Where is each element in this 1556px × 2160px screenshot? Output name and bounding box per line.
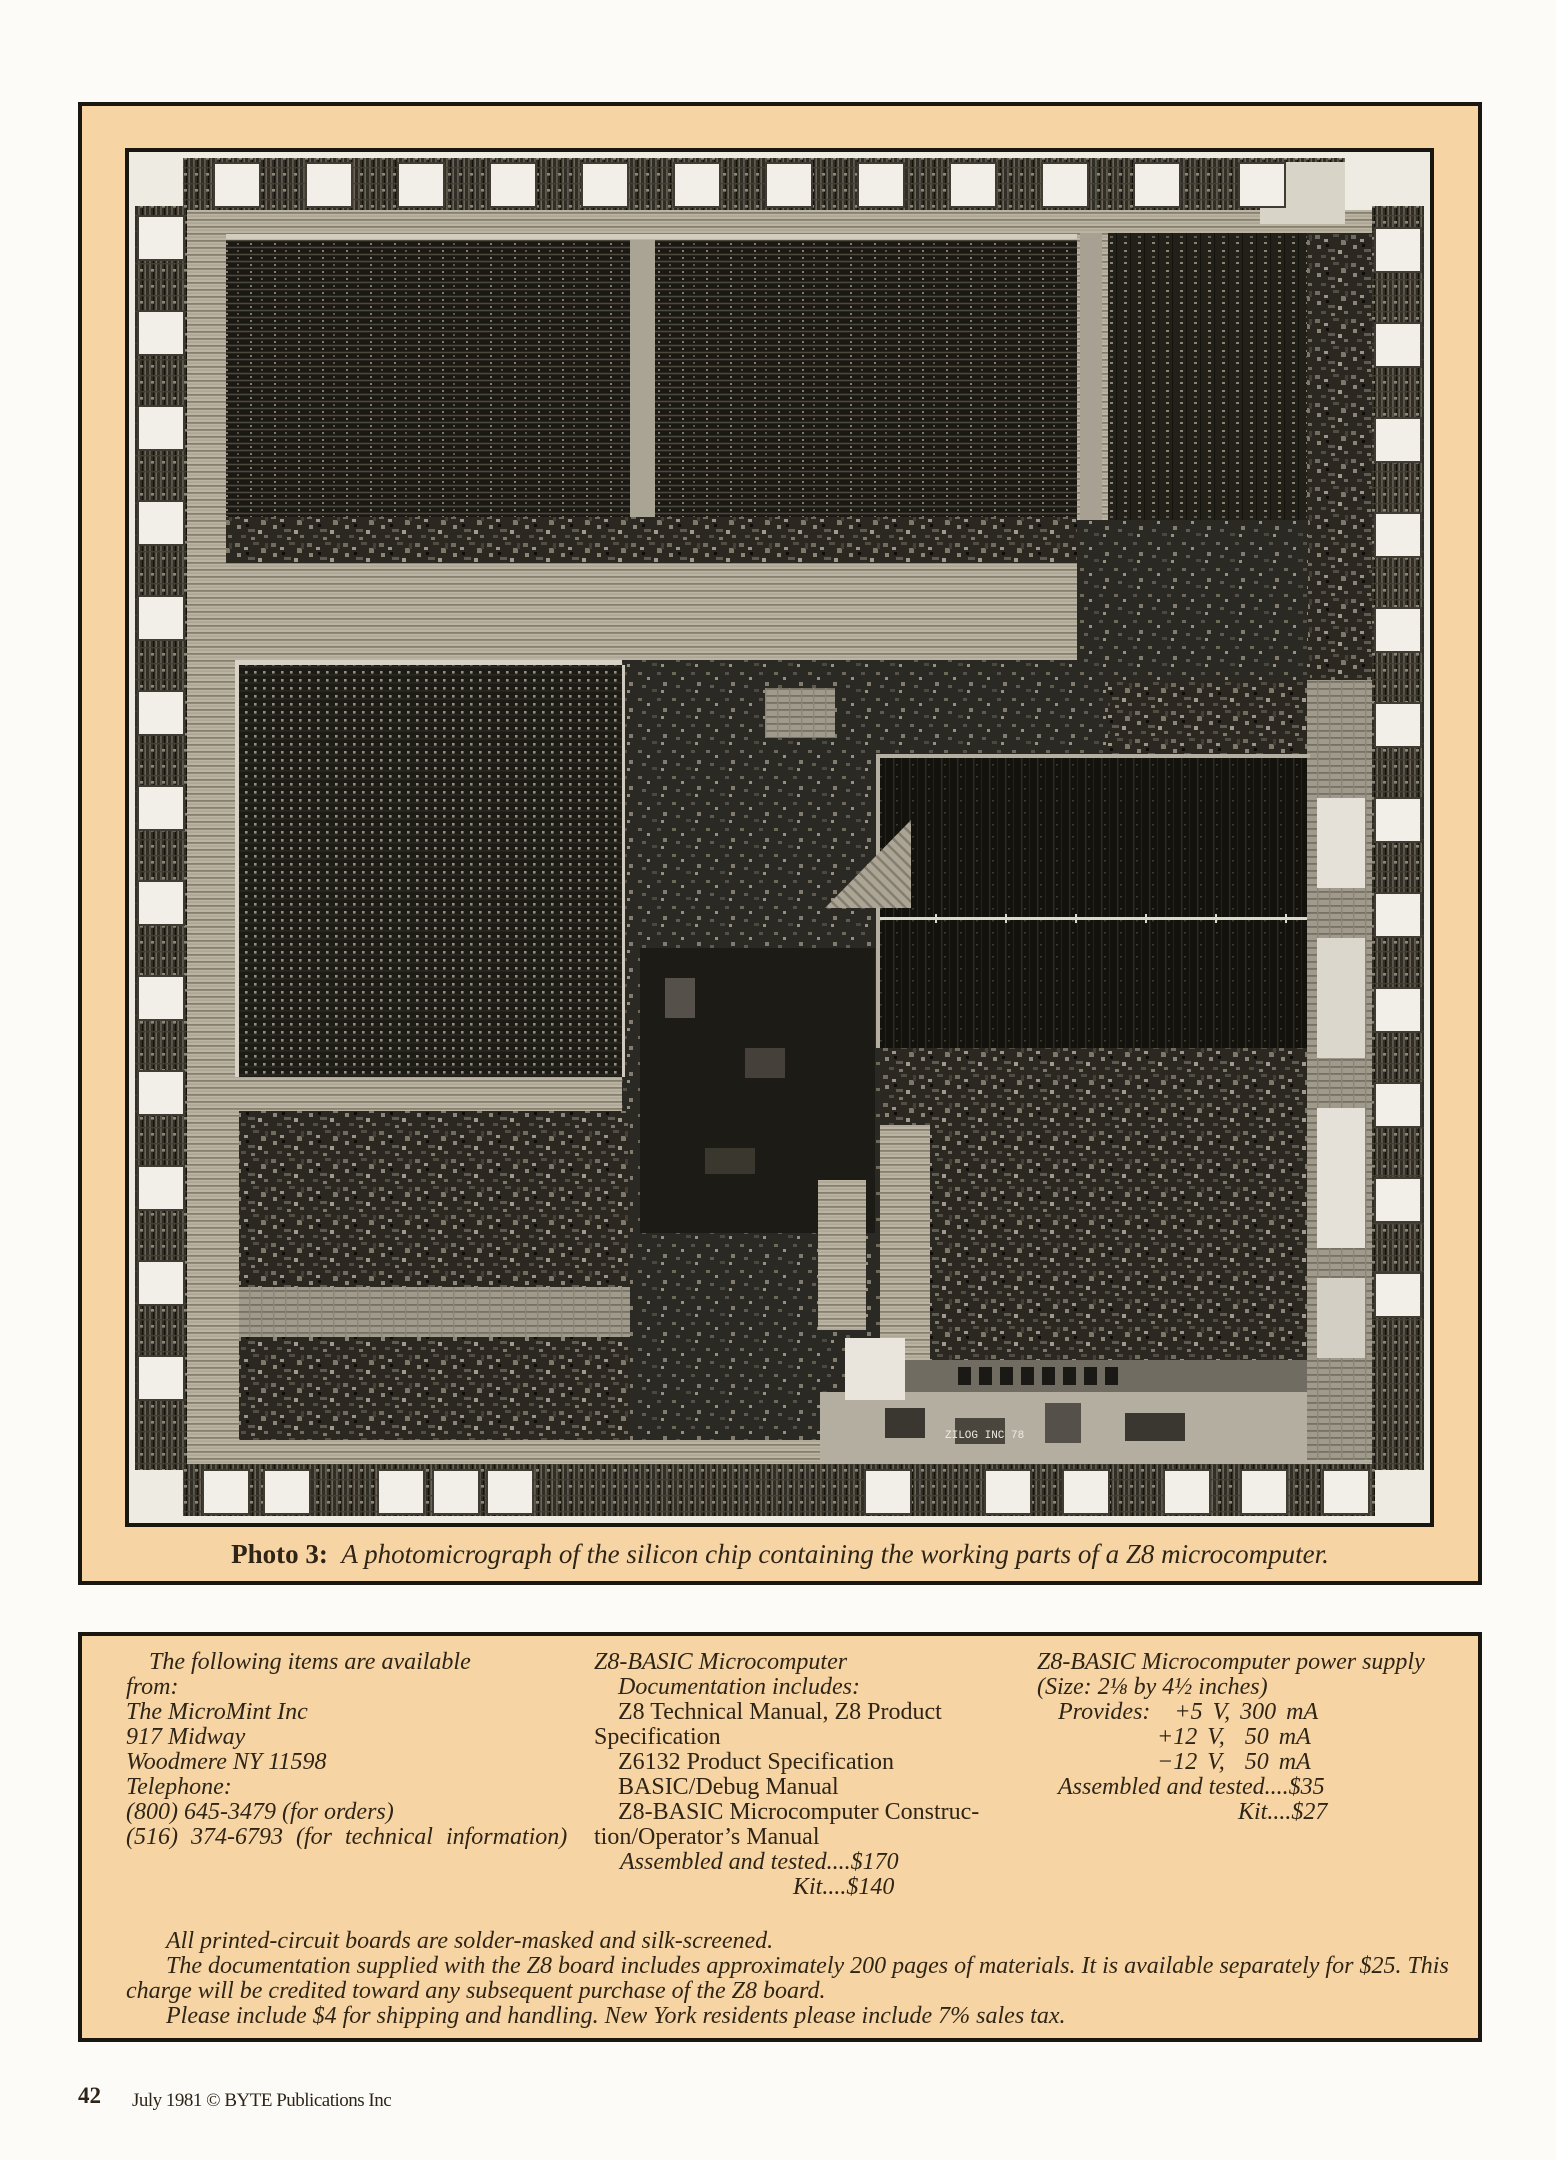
svg-text:ZILOG INC 78: ZILOG INC 78 (945, 1430, 1024, 1442)
